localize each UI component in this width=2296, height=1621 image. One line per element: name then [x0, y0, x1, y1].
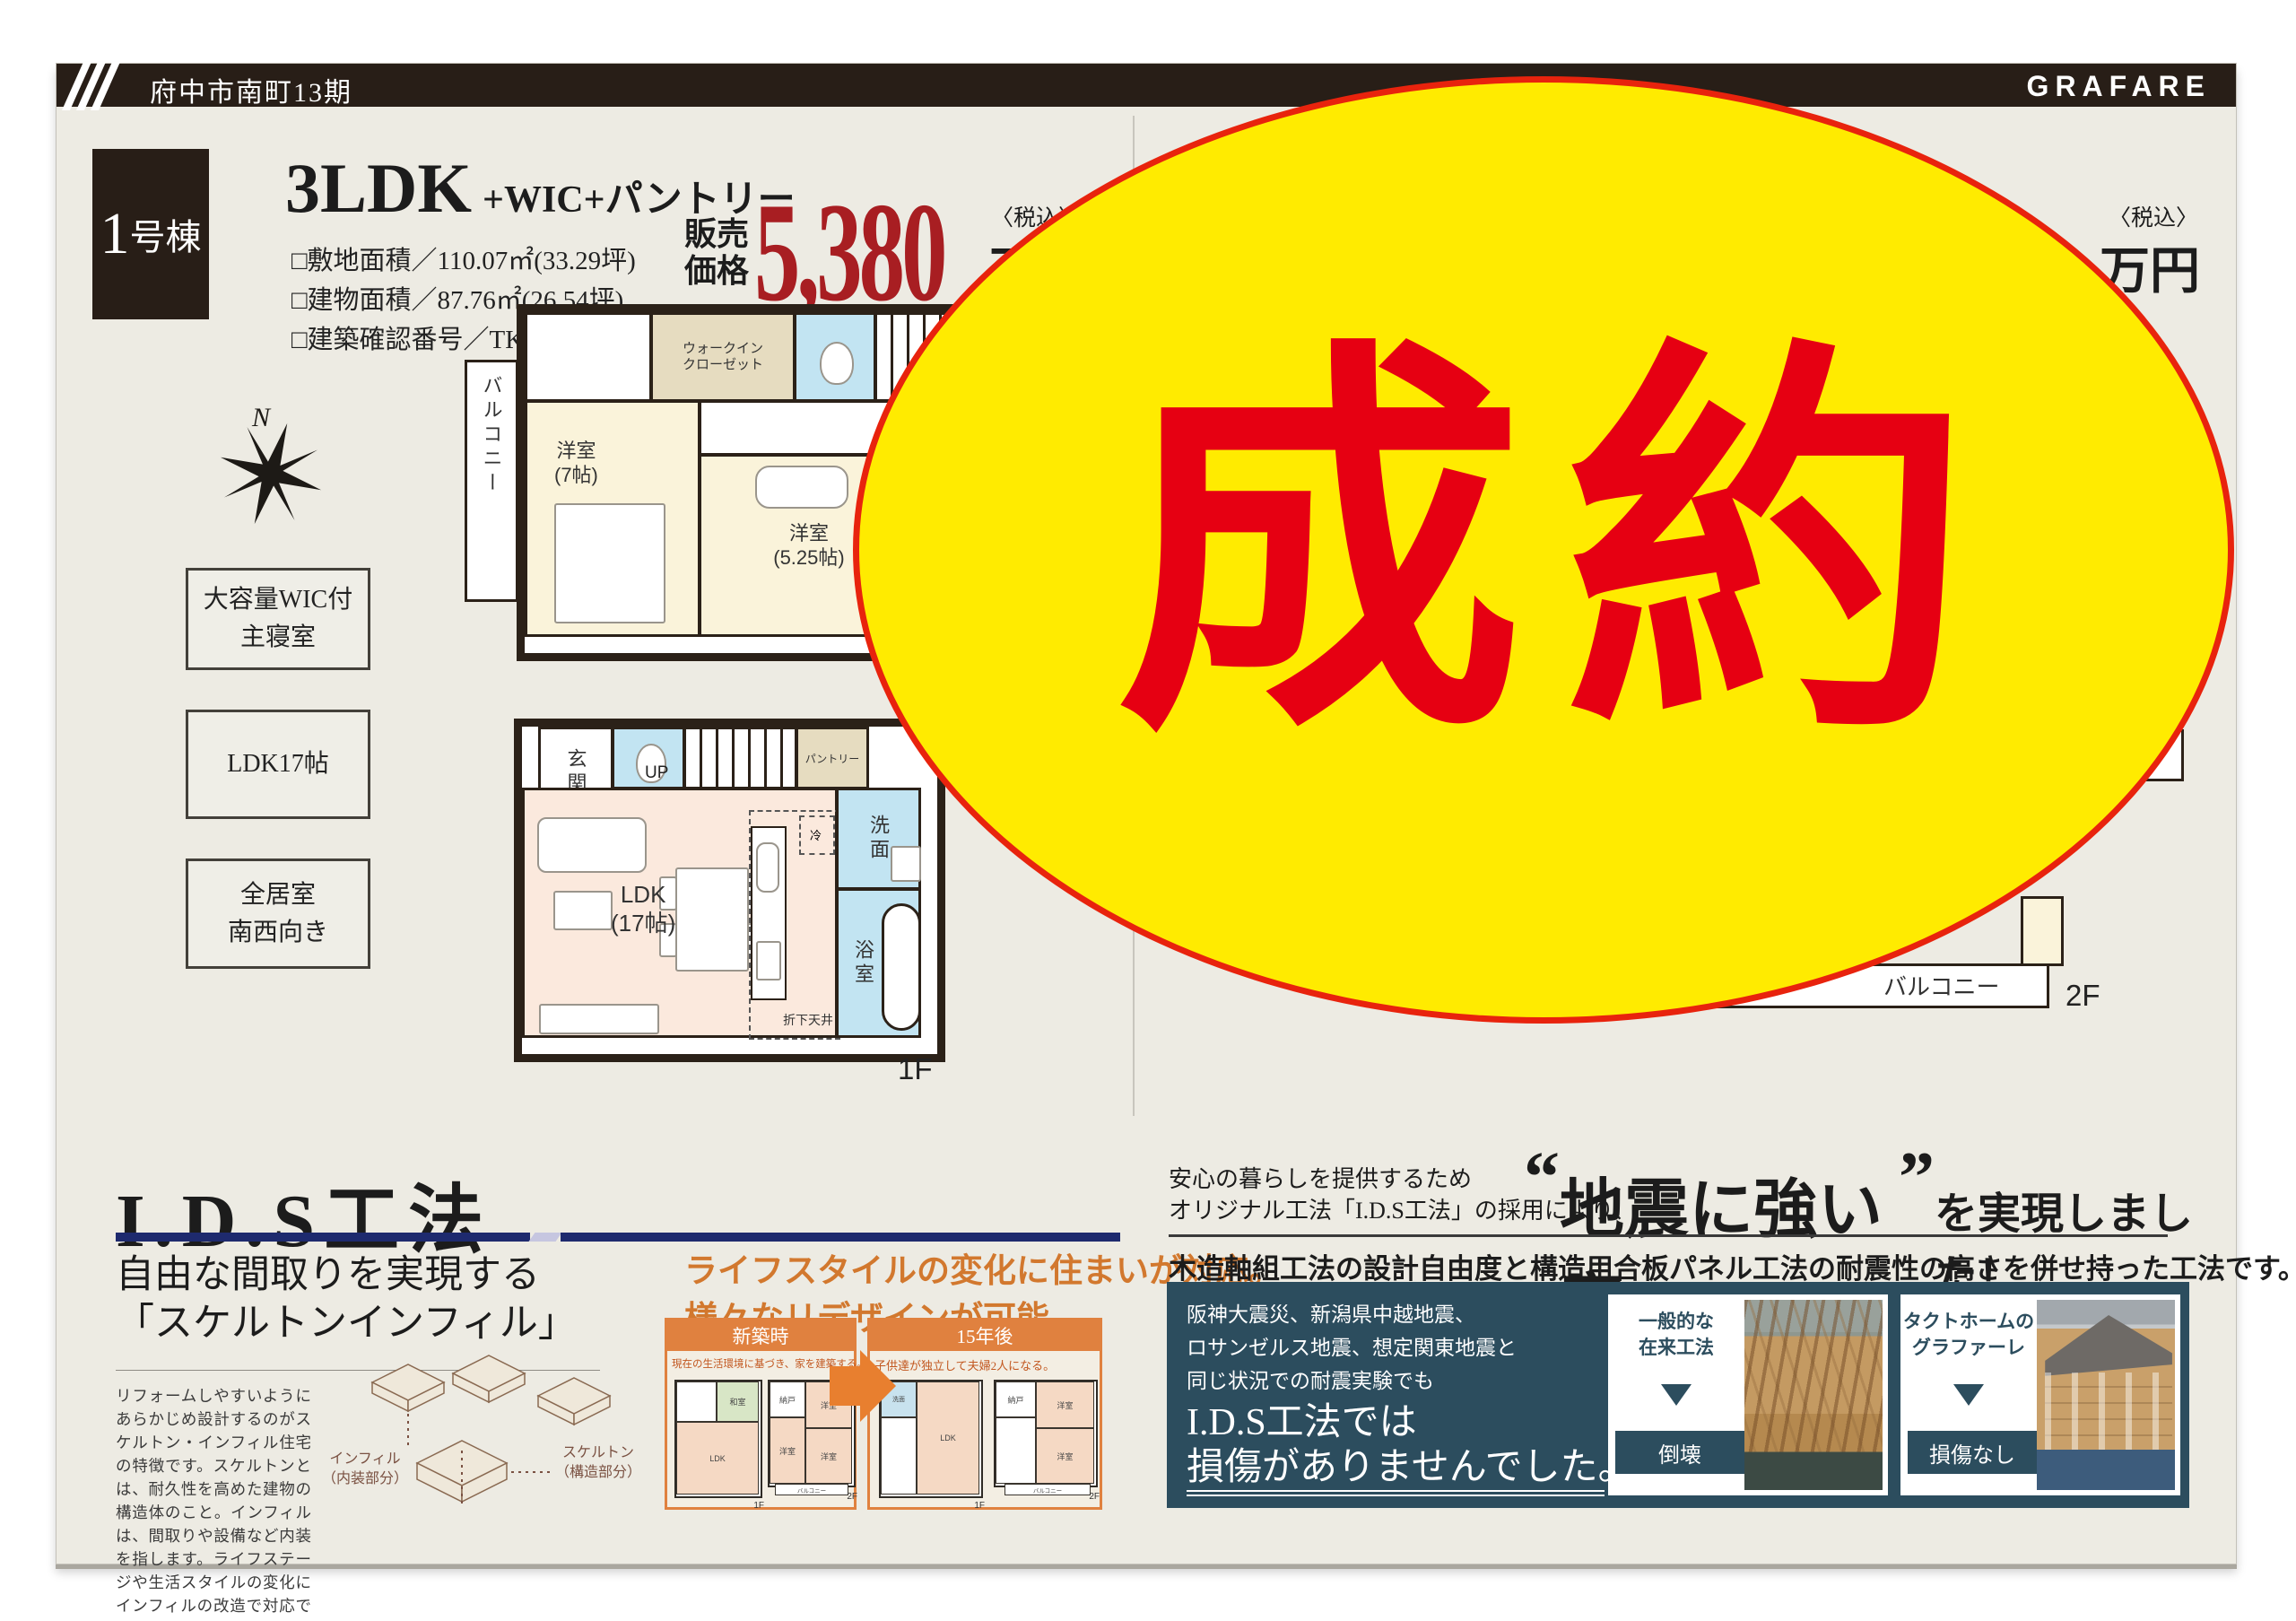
sold-text: 成約	[1075, 346, 2013, 754]
bathroom: 浴室	[836, 888, 921, 1038]
flyer-page: 府中市南町13期 GRAFARE 1号棟 3LDK +WIC+パントリー □敷地…	[56, 63, 2237, 1564]
card-label: タクトホームの グラファーレ	[1900, 1309, 2037, 1361]
infill-label: インフィル （内装部分）	[322, 1450, 408, 1489]
quake-card-grafare: タクトホームの グラファーレ 損傷なし	[1900, 1294, 2180, 1495]
quake-box-big: I.D.S工法では 損傷がありませんでした。	[1187, 1400, 1636, 1490]
fridge-box: 冷	[799, 815, 835, 855]
mid-box-after: 15年後 子供達が独立して夫婦2人になる。 洗面 LDK 1F 納戸 洋室 洋室…	[867, 1318, 1102, 1510]
project-title: 府中市南町13期	[150, 70, 352, 109]
unit1-plan-type: 3LDK	[285, 153, 472, 223]
brand-logo: GRAFARE	[2027, 70, 2211, 103]
unit1-price-value: 5,380	[754, 182, 944, 324]
unit3-2f-tag: 2F	[2066, 979, 2100, 1013]
result-badge: 倒壊	[1615, 1431, 1744, 1474]
toilet-2f	[794, 312, 876, 402]
intact-house-photo	[2037, 1300, 2175, 1490]
mid-box-after-caption: 子供達が独立して夫婦2人になる。	[870, 1351, 1100, 1375]
wall-shape	[2045, 1373, 2172, 1452]
mid-box-before: 新築時 現在の生活環境に基づき、家を建築する。 和室 LDK 1F 納戸 洋室 …	[665, 1318, 857, 1510]
down-triangle-icon	[1661, 1384, 1692, 1406]
unit1-1f-tag: 1F	[898, 1052, 933, 1086]
skeleton-label: スケルトン （構造部分）	[555, 1443, 641, 1483]
unit1-badge: 1号棟	[92, 149, 209, 319]
ids-underline-accent	[528, 1233, 561, 1242]
ldk: LDK(17帖) 冷 折下天井	[522, 788, 838, 1038]
mini-plan-1f: 和室 LDK 1F	[674, 1380, 762, 1498]
toilet-icon	[820, 342, 854, 385]
unit1-feature-2: LDK17帖	[186, 710, 370, 819]
quake-box-underline	[1187, 1490, 1605, 1496]
ids-underline-bar	[561, 1233, 1120, 1242]
quake-card-conventional: 一般的な 在来工法 倒壊	[1608, 1294, 1888, 1495]
hall	[525, 312, 652, 402]
dining-table-icon	[675, 867, 749, 972]
unit1-plan-suffix: +WIC+パントリー	[483, 169, 796, 223]
unit1-1f-plan: 玄関 UP パントリー LDK(17帖) 冷 折下天井	[514, 719, 945, 1062]
tv-board-icon	[539, 1004, 659, 1034]
tarp-shape	[2037, 1450, 2175, 1490]
unit1-feature-1: 大容量WIC付 主寝室	[186, 568, 370, 670]
collapsed-house-photo	[1744, 1300, 1883, 1490]
unit1-spec-land: □敷地面積／110.07㎡(33.29坪)	[291, 241, 694, 281]
quake-box: 阪神大震災、新潟県中越地震、 ロサンゼルス地震、想定関東地震と 同じ状況での耐震…	[1167, 1282, 2189, 1508]
bed-icon	[554, 503, 665, 623]
result-badge: 損傷なし	[1908, 1431, 2037, 1474]
washroom: 洗面	[836, 788, 921, 890]
ids-underline-bar	[116, 1233, 530, 1242]
sink-icon	[756, 842, 779, 893]
transition-arrow-icon	[860, 1350, 896, 1422]
sofa-icon	[537, 817, 647, 873]
unit1-badge-suffix: 号棟	[130, 208, 202, 260]
quake-subheadline: 木造軸組工法の設計自由度と構造用合板パネル工法の耐震性の高さを併せ持った工法です…	[1169, 1246, 2296, 1286]
pantry: パントリー	[796, 727, 869, 789]
transition-arrow-tail	[830, 1366, 860, 1406]
mid-box-before-caption: 現在の生活環境に基づき、家を建築する。	[667, 1351, 854, 1373]
balcony-label: バルコニー	[480, 375, 504, 496]
unit1-plan-title-row: 3LDK +WIC+パントリー	[285, 153, 796, 223]
unit1-badge-number: 1	[100, 200, 130, 268]
flyer-canvas: 府中市南町13期 GRAFARE 1号棟 3LDK +WIC+パントリー □敷地…	[0, 0, 2296, 1621]
walkin-closet: ウォークインクローゼット	[650, 312, 796, 402]
down-triangle-icon	[1953, 1384, 1984, 1406]
sold-sticker: 成約	[853, 76, 2234, 1024]
quake-rule	[1169, 1234, 2168, 1237]
unit1-price-label: 販売 価格	[684, 216, 749, 290]
table-icon	[553, 891, 613, 930]
ids-body: リフォームしやすいようにあらかじめ設計するのがスケルトン・インフィル住宅の特徴で…	[116, 1384, 311, 1621]
unit1-feature-3: 全居室 南西向き	[186, 858, 370, 969]
unit3-2f-room-fragment	[2021, 896, 2064, 966]
compass-icon	[218, 421, 324, 527]
stove-icon	[756, 941, 781, 980]
bedroom-7j: 洋室(7帖)	[525, 400, 700, 637]
balcony-label: バルコニー	[1883, 975, 1999, 999]
washer-icon	[891, 846, 921, 882]
unit1-2f-balcony: バルコニー	[465, 360, 518, 602]
ids-subtitle: 自由な間取りを実現する 「スケルトンインフィル」	[116, 1251, 577, 1348]
header-bar: 府中市南町13期 GRAFARE	[57, 64, 2236, 107]
desk-icon	[755, 466, 848, 509]
mid-box-after-header: 15年後	[870, 1320, 1100, 1351]
mini-plan-2f: 納戸 洋室 洋室 バルコニー 2F	[994, 1380, 1098, 1487]
quake-box-lines: 阪神大震災、新潟県中越地震、 ロサンゼルス地震、想定関東地震と 同じ状況での耐震…	[1187, 1298, 1517, 1398]
unit3-price-tax: 〈税込〉	[2109, 200, 2198, 232]
mid-box-before-header: 新築時	[667, 1320, 854, 1351]
card-label: 一般的な 在来工法	[1608, 1309, 1744, 1361]
stairs-up: UP	[683, 727, 797, 789]
bathtub-icon	[882, 903, 921, 1031]
